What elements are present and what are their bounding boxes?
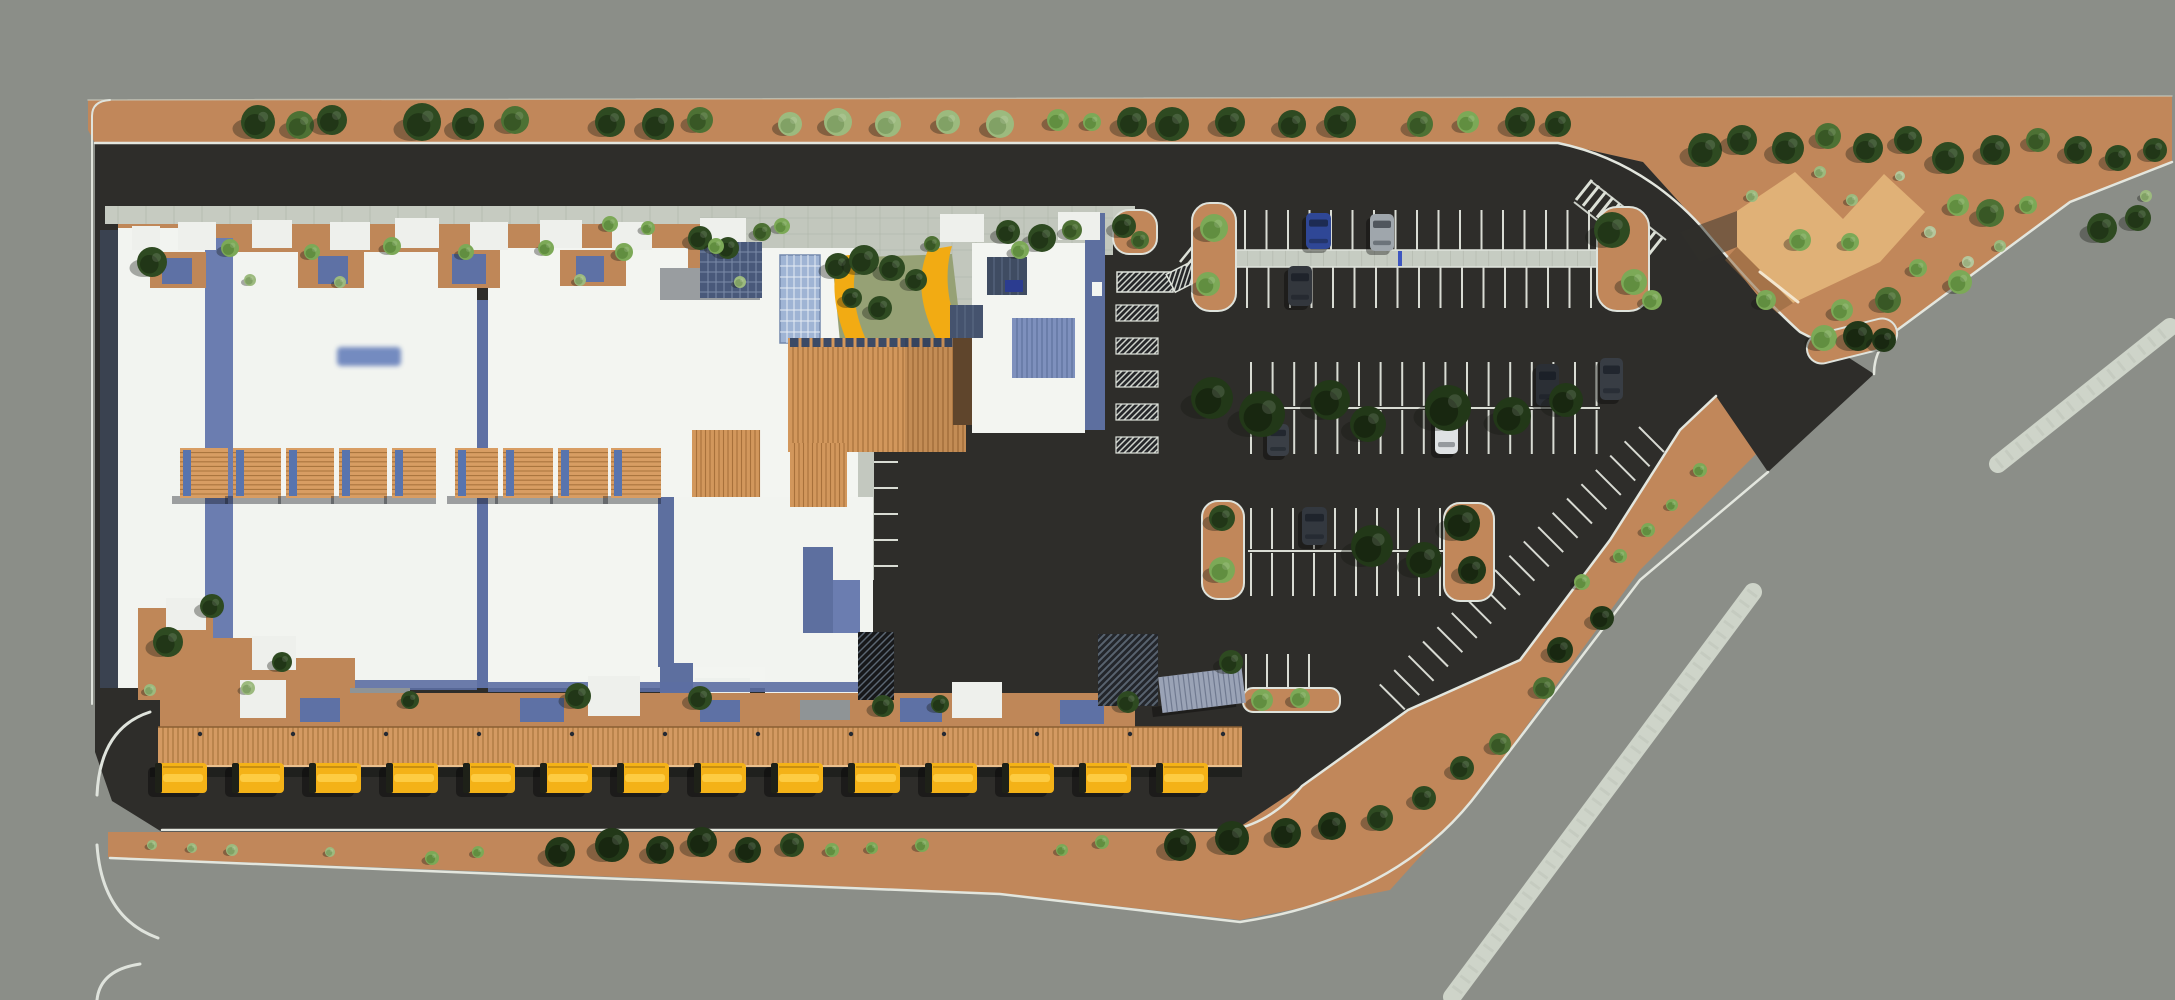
louvered-canopy-module [278,448,334,504]
louvered-canopy-module [331,448,387,504]
school-bus [302,763,361,797]
school-bus [379,763,438,797]
bus-canopy [158,727,1242,767]
southeast-blue-step [803,547,833,633]
rooftop-unit [470,222,508,250]
rooftop-unit [940,214,984,242]
parked-car [1298,507,1327,549]
parked-car [1366,214,1394,255]
louvered-canopy-module [172,448,228,504]
blurred-sign [337,347,401,366]
school-bus [533,763,592,797]
site-plan-rendering [0,0,2175,1000]
school-building-tower [674,497,771,667]
rooftop-unit [252,220,292,248]
parked-car [1596,358,1623,404]
aerial-site-plan [0,0,2175,1000]
west-facade [100,230,118,688]
school-bus [918,763,977,797]
courtyard-canopy [520,698,564,722]
tower-blue-wall [658,497,674,667]
rooftop-unit [395,218,439,248]
louvered-canopy-module [603,448,661,504]
rooftop-unit [588,676,640,716]
rooftop-unit [952,682,1002,718]
orange-ribbed-roof [692,430,760,497]
southeast-blue-step [833,580,860,633]
school-bus [225,763,284,797]
school-bus [1072,763,1131,797]
blue-ribbed-roof [1012,318,1075,378]
rooftop-unit [330,222,370,250]
school-bus [456,763,515,797]
school-bus [610,763,669,797]
school-bus [1149,763,1208,797]
parked-car [1302,213,1331,253]
rooftop-unit [132,226,160,250]
school-bus [841,763,900,797]
school-bus [687,763,746,797]
parked-car [1284,266,1312,310]
courtyard-canopy [300,698,340,722]
rooftop-unit [178,222,216,250]
south-blue-edge [488,682,860,692]
parking-walkway [1213,250,1632,267]
water-feature [1005,280,1023,292]
terrace-pad [800,700,850,720]
louvered-canopy-module [495,448,553,504]
walkway-blue-mark [1398,251,1402,266]
school-bus [995,763,1054,797]
rooftop-unit [1092,282,1102,296]
louvered-canopy-module [550,448,608,504]
northeast-blue-wall [1085,213,1105,430]
school-bus [764,763,823,797]
glass-roof [950,305,983,338]
courtyard-canopy [1060,700,1104,724]
school-bus [148,763,207,797]
orange-ribbed-roof [790,443,847,507]
gym-east-wall [953,338,972,425]
louvered-canopy-module [225,448,281,504]
